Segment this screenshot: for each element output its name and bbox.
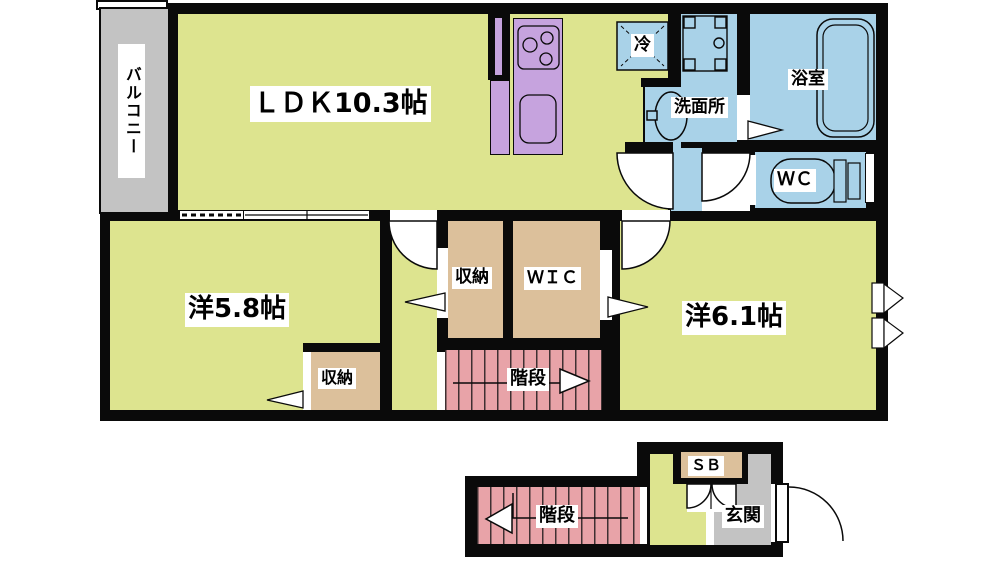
corridor-door-arc [389, 221, 437, 269]
washroom-door-arc [617, 153, 673, 209]
sliding-door-symbol [245, 211, 368, 219]
linework-layer [0, 0, 1000, 562]
wic-door-triangle [608, 297, 648, 317]
wic-label: ＷＩＣ [524, 267, 581, 290]
bedroom-6-1-label: 洋6.1帖 [682, 301, 786, 335]
hall-closet-door-triangle [405, 293, 445, 311]
shoe-box-door-arc-left [687, 484, 711, 508]
sink-icon [520, 95, 556, 143]
bedroom-closet-label: 収納 [318, 368, 356, 389]
bedroom-closet-door-triangle [267, 391, 303, 408]
bathroom-door-triangle [748, 121, 782, 139]
bedroom-6-1-door-arc [622, 221, 670, 269]
stove-icon [518, 26, 559, 69]
ldk-label: ＬＤＫ10.3帖 [250, 86, 431, 122]
lower-stairs-label: 階段 [536, 505, 578, 528]
toilet-label: ＷＣ [774, 169, 816, 192]
bedroom-5-8-label: 洋5.8帖 [185, 293, 289, 327]
washing-machine-icon [683, 16, 727, 71]
refrigerator-label: 冷 [631, 34, 654, 57]
floor-plan: バルコニー ＬＤＫ10.3帖 冷 洗面所 浴室 ＷＣ 洋5.8帖 収納 ＷＩＣ … [0, 0, 1000, 562]
wc-door-arc [702, 153, 750, 201]
hall-closet-label: 収納 [452, 267, 492, 289]
shoe-box-label: ＳＢ [688, 456, 724, 476]
casement-window-symbols [872, 283, 903, 348]
upper-stairs-label: 階段 [507, 368, 549, 391]
front-door-arc [789, 487, 843, 541]
washroom-label: 洗面所 [671, 97, 728, 118]
balcony-label: バルコニー [118, 44, 145, 178]
entrance-label: 玄関 [722, 505, 764, 528]
door-arcs [389, 153, 843, 541]
bathroom-label: 浴室 [788, 69, 828, 90]
